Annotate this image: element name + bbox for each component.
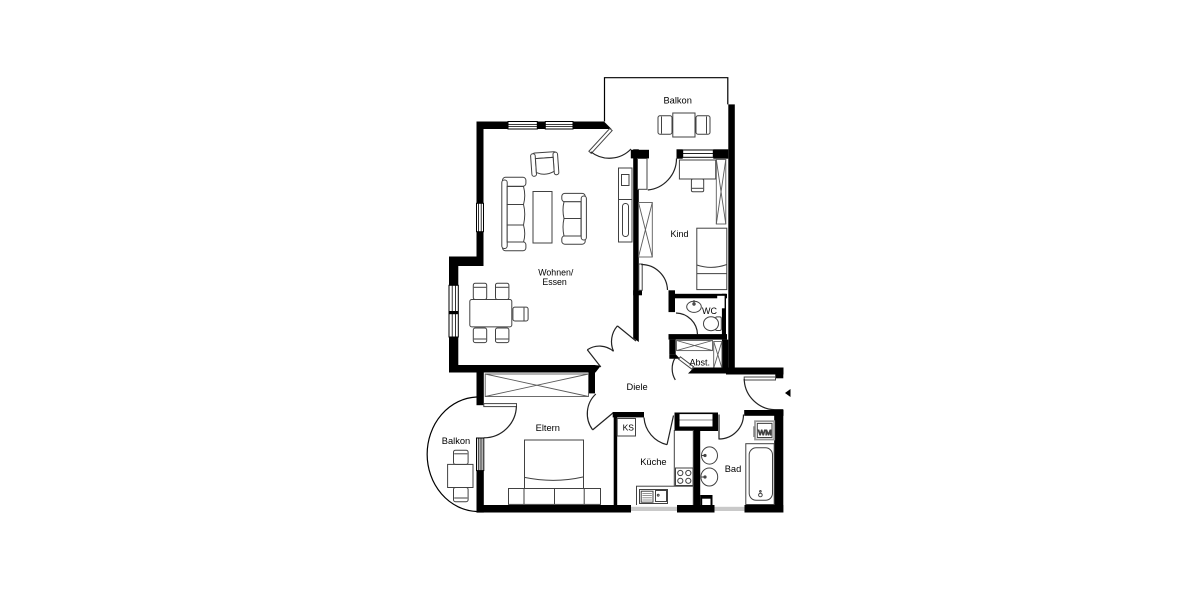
svg-text:Kind: Kind bbox=[670, 229, 688, 239]
svg-text:Balkon: Balkon bbox=[663, 95, 691, 105]
svg-text:Diele: Diele bbox=[627, 382, 648, 392]
svg-text:Eltern: Eltern bbox=[536, 423, 560, 433]
svg-text:Essen: Essen bbox=[542, 277, 567, 287]
svg-text:Abst.: Abst. bbox=[689, 358, 710, 368]
svg-text:KS: KS bbox=[623, 423, 635, 433]
svg-text:Bad: Bad bbox=[725, 464, 742, 474]
svg-text:WC: WC bbox=[702, 306, 717, 316]
svg-text:Balkon: Balkon bbox=[442, 436, 470, 446]
svg-text:Küche: Küche bbox=[640, 457, 666, 467]
svg-text:WM: WM bbox=[758, 428, 771, 437]
